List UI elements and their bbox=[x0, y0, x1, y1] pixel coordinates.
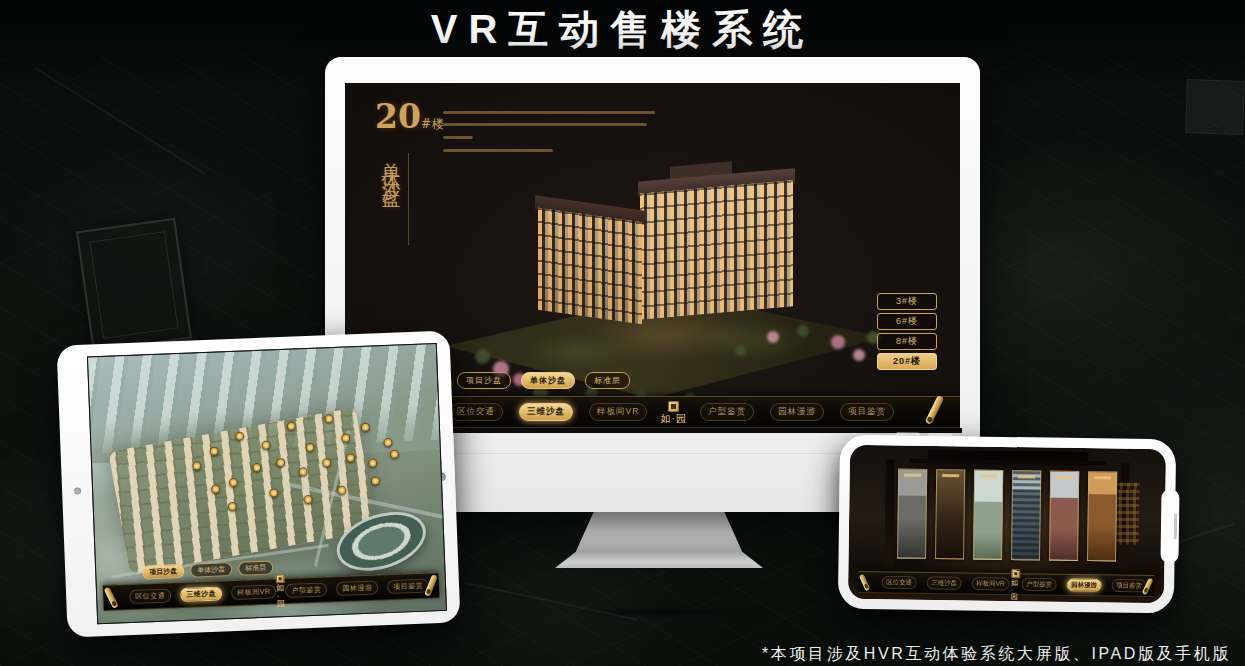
nav-group-left: 区位交通三维沙盘样板间VR bbox=[449, 403, 647, 421]
floor-button[interactable]: 6#楼 bbox=[877, 313, 937, 330]
scroll-icon[interactable] bbox=[859, 574, 870, 592]
floor-button-column: 3#楼6#楼8#楼20#楼 bbox=[877, 293, 937, 370]
gate-roof bbox=[928, 450, 1088, 461]
tree-decoration bbox=[831, 335, 845, 349]
phone-nav-bar: 区位交通三维沙盘样板间VR 如·园 户型鉴赏园林漫游项目鉴赏 bbox=[858, 571, 1154, 597]
nav-item[interactable]: 户型鉴赏 bbox=[285, 582, 328, 598]
scene-panel-gallery bbox=[897, 468, 1117, 561]
nav-item[interactable]: 园林漫游 bbox=[336, 580, 379, 596]
volume-button[interactable] bbox=[896, 432, 920, 435]
nav-item[interactable]: 区位交通 bbox=[882, 576, 917, 589]
scene-panel[interactable] bbox=[897, 468, 927, 558]
camera-icon bbox=[74, 487, 81, 494]
nav-group-right: 户型鉴赏园林漫游项目鉴赏 bbox=[285, 579, 429, 599]
building-marker[interactable] bbox=[371, 476, 380, 485]
mode-tab[interactable]: 单体沙盘 bbox=[190, 562, 233, 578]
mode-tab[interactable]: 标准层 bbox=[238, 561, 274, 576]
tree-decoration bbox=[767, 331, 779, 343]
intro-text-line bbox=[443, 123, 647, 126]
building-3d-render[interactable] bbox=[435, 153, 895, 408]
tablet-screen: 项目沙盘单体沙盘标准层 区位交通三维沙盘样板间VR 如·园 户型鉴赏园林漫游项目… bbox=[87, 343, 447, 624]
monitor-stand bbox=[555, 510, 763, 568]
scene-panel[interactable] bbox=[973, 470, 1003, 560]
seal-icon bbox=[668, 401, 679, 412]
scene-panel[interactable] bbox=[1011, 470, 1041, 560]
scroll-icon[interactable] bbox=[104, 587, 119, 609]
nav-item[interactable]: 户型鉴赏 bbox=[700, 403, 754, 421]
seal-icon bbox=[276, 574, 285, 583]
nav-item[interactable]: 项目鉴赏 bbox=[1111, 579, 1146, 592]
app-logo: 如·园 bbox=[1011, 569, 1020, 600]
intro-text-line bbox=[443, 149, 553, 152]
nav-item[interactable]: 园林漫游 bbox=[1066, 578, 1101, 591]
scene-panel[interactable] bbox=[1087, 471, 1117, 561]
logo-text: 如·园 bbox=[660, 414, 686, 424]
page: VR互动售楼系统 20#楼 单体沙盘 bbox=[0, 0, 1245, 666]
intro-text-line bbox=[443, 136, 473, 139]
background-photo bbox=[1185, 79, 1245, 135]
phone-device: 区位交通三维沙盘样板间VR 如·园 户型鉴赏园林漫游项目鉴赏 bbox=[838, 435, 1176, 614]
building-number-suffix: #楼 bbox=[421, 117, 445, 131]
nav-item[interactable]: 项目鉴赏 bbox=[840, 403, 894, 421]
nav-item[interactable]: 户型鉴赏 bbox=[1021, 578, 1056, 591]
mode-tab[interactable]: 项目沙盘 bbox=[457, 372, 511, 389]
tree-decoration bbox=[853, 349, 865, 361]
tree-decoration bbox=[797, 325, 809, 337]
mode-tab[interactable]: 项目沙盘 bbox=[142, 564, 185, 580]
page-title: VR互动售楼系统 bbox=[0, 2, 1245, 57]
phone-screen: 区位交通三维沙盘样板间VR 如·园 户型鉴赏园林漫游项目鉴赏 bbox=[848, 445, 1166, 603]
nav-group-left: 区位交通三维沙盘样板间VR bbox=[129, 584, 277, 604]
nav-item[interactable]: 项目鉴赏 bbox=[387, 579, 430, 595]
nav-item[interactable]: 三维沙盘 bbox=[180, 586, 223, 602]
building-number: 20 bbox=[375, 97, 421, 136]
tree-decoration bbox=[735, 345, 746, 356]
building-facade-left bbox=[538, 208, 642, 325]
background-road-line bbox=[35, 67, 206, 175]
monitor-stand-shadow bbox=[545, 604, 775, 620]
tree-decoration bbox=[475, 349, 490, 364]
volume-button[interactable] bbox=[928, 433, 952, 436]
mode-tabs: 项目沙盘单体沙盘标准层 bbox=[457, 372, 630, 389]
scroll-icon[interactable] bbox=[925, 395, 944, 425]
nav-group-right: 户型鉴赏园林漫游项目鉴赏 bbox=[700, 403, 894, 421]
vertical-rule bbox=[408, 153, 409, 245]
tablet-device: 项目沙盘单体沙盘标准层 区位交通三维沙盘样板间VR 如·园 户型鉴赏园林漫游项目… bbox=[57, 331, 461, 638]
nav-item[interactable]: 区位交通 bbox=[449, 403, 503, 421]
building-model bbox=[540, 175, 800, 325]
phone-notch bbox=[1160, 489, 1179, 563]
intro-text-line bbox=[443, 111, 655, 114]
speaker-icon bbox=[1174, 513, 1177, 539]
gate-column bbox=[884, 459, 895, 569]
building-marker[interactable] bbox=[390, 450, 399, 459]
nav-item[interactable]: 样板间VR bbox=[589, 403, 647, 421]
seal-icon bbox=[1011, 569, 1020, 578]
nav-item[interactable]: 三维沙盘 bbox=[519, 403, 573, 421]
nav-item[interactable]: 三维沙盘 bbox=[927, 576, 962, 589]
nav-item[interactable]: 样板间VR bbox=[231, 584, 277, 600]
nav-group-left: 区位交通三维沙盘样板间VR bbox=[880, 575, 1011, 591]
nav-item[interactable]: 样板间VR bbox=[972, 577, 1010, 590]
building-facade-right bbox=[640, 180, 793, 319]
background-plaque bbox=[76, 218, 192, 353]
logo-text: 如·园 bbox=[1011, 579, 1020, 600]
vertical-subtitle: 单体沙盘 bbox=[379, 147, 405, 183]
nav-item[interactable]: 区位交通 bbox=[129, 588, 172, 604]
footnote: *本项目涉及HVR互动体验系统大屏版、IPAD版及手机版 bbox=[762, 644, 1231, 665]
floor-button[interactable]: 20#楼 bbox=[877, 353, 937, 370]
nav-item[interactable]: 园林漫游 bbox=[770, 403, 824, 421]
floor-button[interactable]: 3#楼 bbox=[877, 293, 937, 310]
building-marker[interactable] bbox=[368, 458, 377, 467]
floor-button[interactable]: 8#楼 bbox=[877, 333, 937, 350]
scene-panel[interactable] bbox=[935, 469, 965, 559]
app-logo: 如·园 bbox=[660, 401, 686, 424]
scene-panel[interactable] bbox=[1049, 471, 1079, 561]
mode-tab[interactable]: 标准层 bbox=[585, 372, 630, 389]
building-number-heading: 20#楼 bbox=[375, 97, 445, 136]
nav-group-right: 户型鉴赏园林漫游项目鉴赏 bbox=[1020, 577, 1148, 593]
mode-tab[interactable]: 单体沙盘 bbox=[521, 372, 575, 389]
